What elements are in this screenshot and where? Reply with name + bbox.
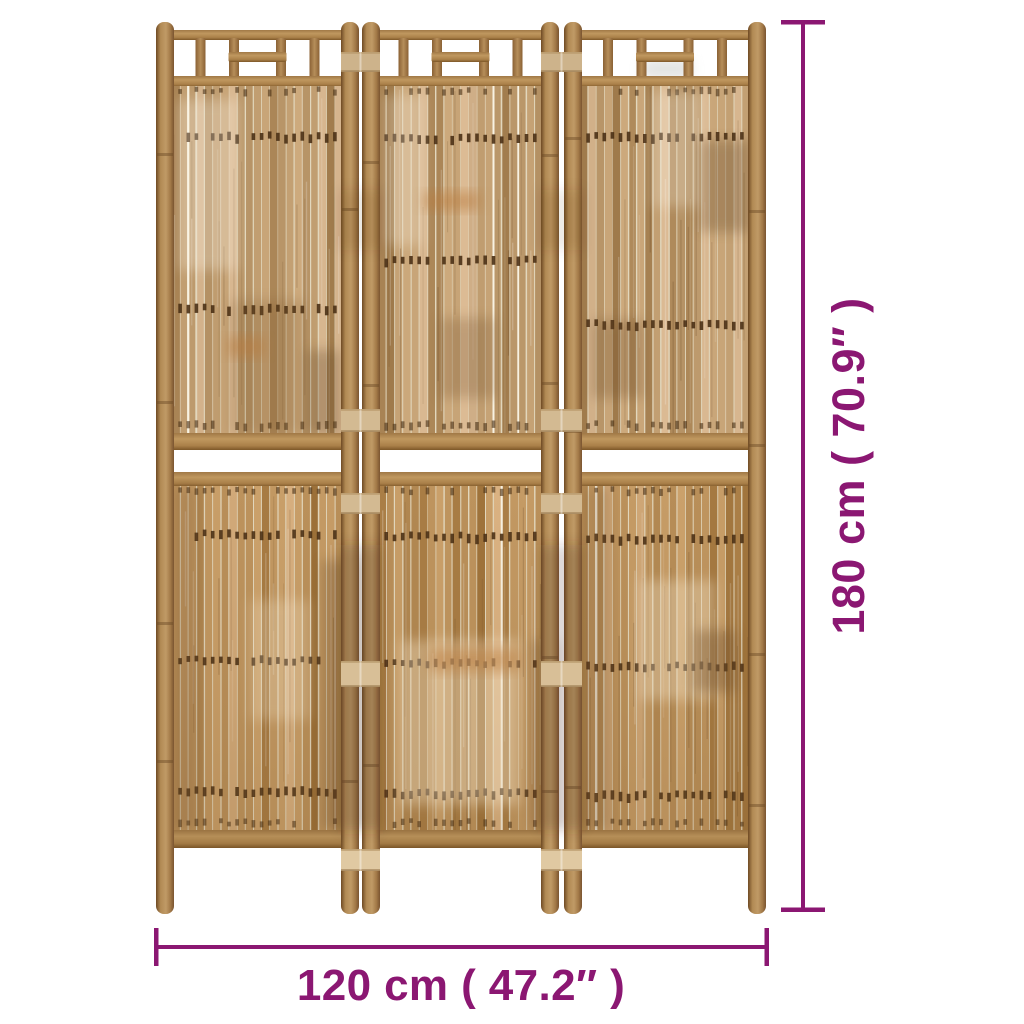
svg-text:180 cm ( 70.9″ ): 180 cm ( 70.9″ ): [823, 297, 874, 634]
svg-text:120 cm ( 47.2″ ): 120 cm ( 47.2″ ): [297, 961, 625, 1010]
